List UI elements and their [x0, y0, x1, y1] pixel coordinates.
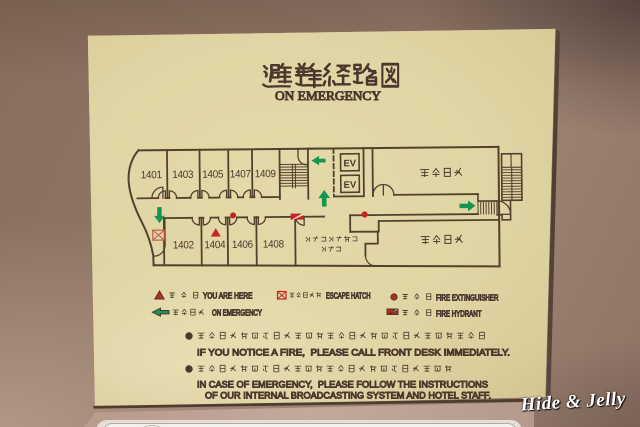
svg-text:ON EMERGENCY: ON EMERGENCY [212, 309, 263, 318]
svg-text:1403: 1403 [172, 169, 193, 181]
svg-text:FIRE EXTINGUISHER: FIRE EXTINGUISHER [436, 294, 499, 303]
svg-text:1409: 1409 [255, 168, 276, 180]
svg-text:1408: 1408 [263, 238, 284, 250]
svg-text:1406: 1406 [232, 239, 253, 251]
svg-text:OF OUR INTERNAL BROADCASTING S: OF OUR INTERNAL BROADCASTING SYSTEM AND … [205, 391, 491, 401]
svg-text:1405: 1405 [202, 169, 223, 181]
svg-text:EV: EV [344, 180, 357, 191]
svg-text:1401: 1401 [141, 169, 162, 181]
svg-text:IN CASE OF EMERGENCY, PLEASE: IN CASE OF EMERGENCY, PLEASE FOLLOW THE … [197, 380, 488, 390]
svg-text:ON EMERGENCY: ON EMERGENCY [275, 88, 382, 103]
svg-text:IF YOU NOTICE A FIRE, PLEASE: IF YOU NOTICE A FIRE, PLEASE CALL FRONT … [197, 348, 510, 358]
svg-text:YOU ARE HERE: YOU ARE HERE [203, 292, 253, 301]
svg-text:EV: EV [343, 158, 356, 169]
svg-text:ESCAPE HATCH: ESCAPE HATCH [326, 292, 371, 301]
svg-text:FIRE HYDRANT: FIRE HYDRANT [436, 310, 482, 319]
svg-text:1407: 1407 [230, 168, 251, 180]
svg-text:1404: 1404 [204, 239, 225, 251]
svg-text:1402: 1402 [173, 239, 194, 251]
